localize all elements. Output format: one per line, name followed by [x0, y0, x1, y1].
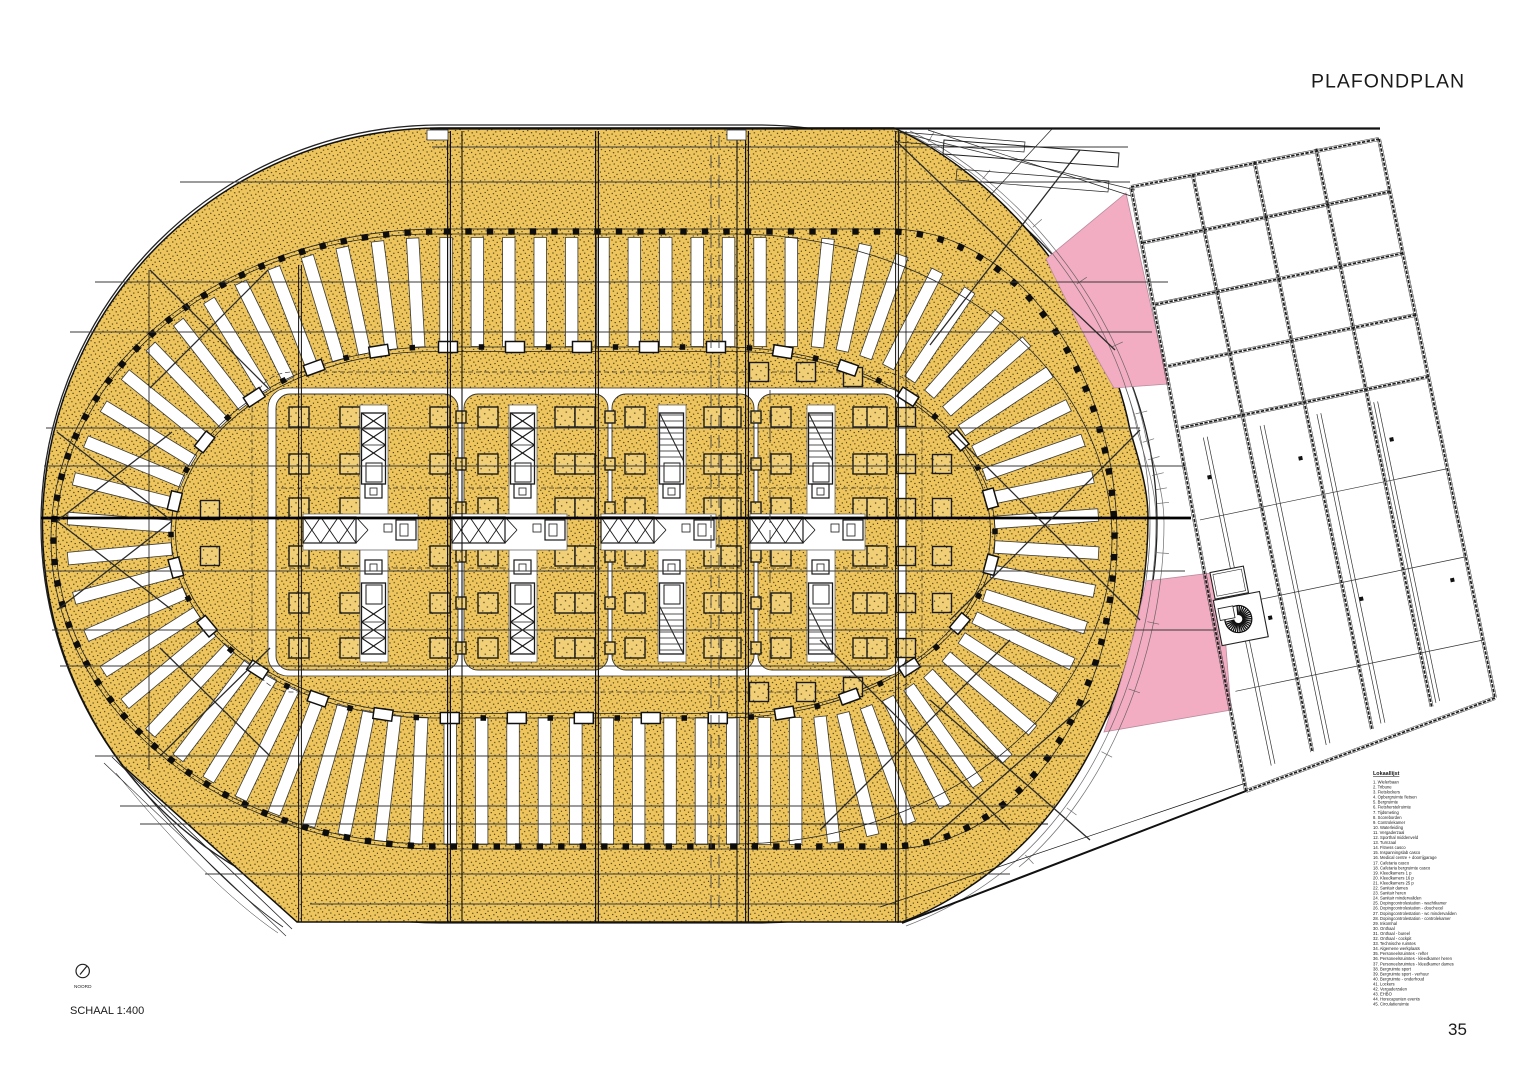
svg-text:PLAFONDPLAN: PLAFONDPLAN — [1311, 71, 1465, 93]
svg-text:Lokaallijst: Lokaallijst — [1373, 771, 1400, 777]
svg-text:SCHAAL 1:400: SCHAAL 1:400 — [70, 1005, 144, 1017]
svg-text:35: 35 — [1448, 1020, 1467, 1039]
svg-text:NOORD: NOORD — [74, 984, 92, 989]
